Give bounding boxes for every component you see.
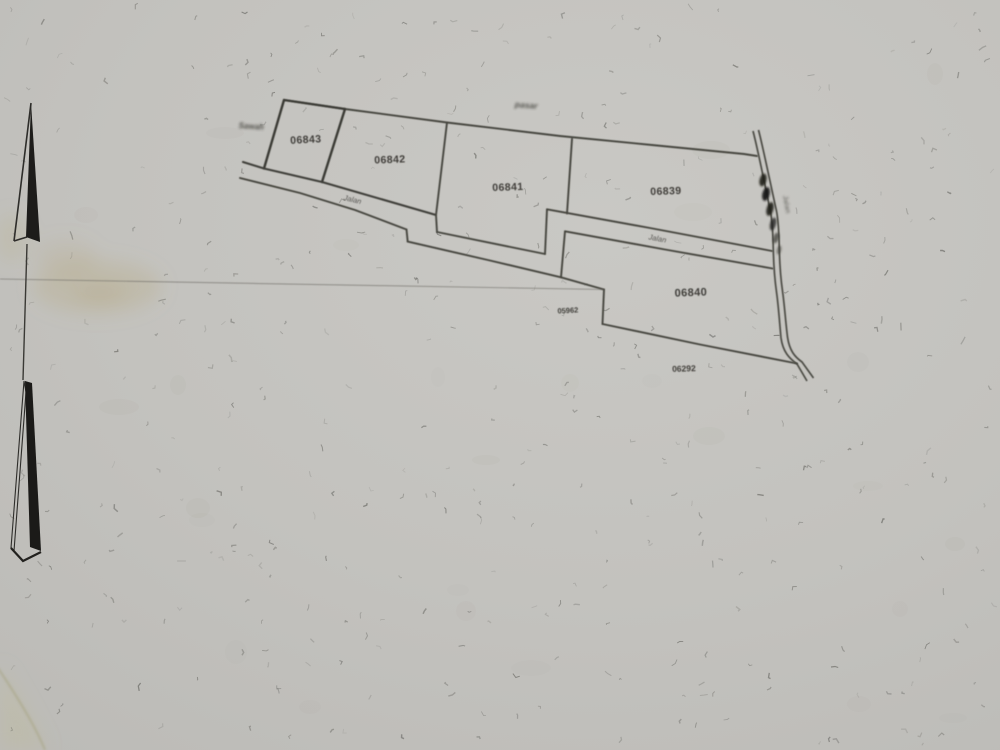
svg-text:06292: 06292: [672, 363, 696, 374]
svg-text:06839: 06839: [650, 185, 682, 198]
svg-text:Sawah: Sawah: [238, 121, 264, 132]
svg-text:05962: 05962: [557, 305, 578, 315]
svg-text:06843: 06843: [290, 133, 322, 147]
svg-text:06842: 06842: [374, 153, 406, 166]
svg-text:pasar: pasar: [514, 99, 539, 111]
svg-text:06841: 06841: [492, 181, 524, 194]
svg-text:06840: 06840: [674, 286, 707, 299]
